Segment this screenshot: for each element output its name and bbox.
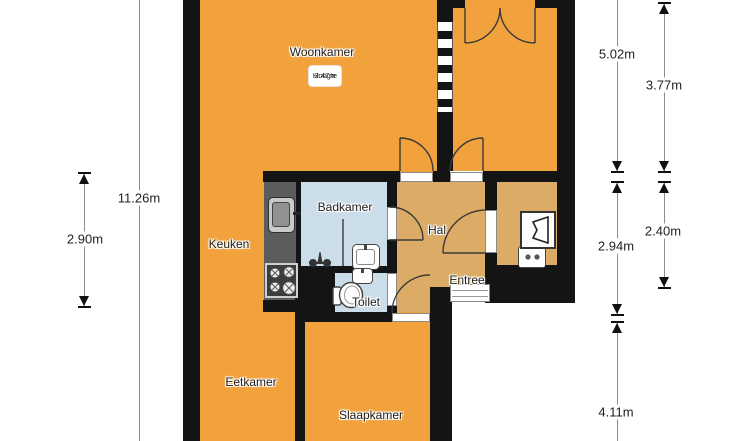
dim-arrow xyxy=(79,174,89,184)
floor-slaapkamer xyxy=(305,322,430,441)
dim-tick xyxy=(658,287,671,289)
wall-hal-utility-top xyxy=(485,182,497,210)
wall-kitchen-bottom xyxy=(263,300,296,312)
power-outlet-icon xyxy=(518,246,546,268)
label-eetkamer: Eetkamer xyxy=(225,375,276,389)
dim-line-right-bottom xyxy=(617,323,618,441)
label-keuken: Keuken xyxy=(209,237,250,251)
dim-tick xyxy=(78,306,91,308)
wall-badkamer-left xyxy=(296,182,301,268)
height-note-badge: Hoogte 2.47m xyxy=(308,65,342,87)
wall-slaapkamer-top xyxy=(303,312,392,322)
wall-horizontal-c xyxy=(483,171,575,182)
threshold-woonkamer-hal xyxy=(400,172,433,182)
wall-top-jamb-left xyxy=(453,0,465,8)
dim-arrow xyxy=(612,323,622,333)
bathroom-sink-tap xyxy=(364,244,367,250)
label-badkamer: Badkamer xyxy=(318,200,373,214)
threshold-utility xyxy=(485,210,497,253)
wall-bottom-right-chunk xyxy=(485,265,575,303)
wall-right-outer xyxy=(557,0,575,287)
threshold-badkamer xyxy=(387,207,397,240)
threshold-slaapkamer xyxy=(392,313,430,322)
wall-horizontal-b xyxy=(433,171,450,182)
dim-tick xyxy=(611,171,624,173)
wall-divider-top xyxy=(437,0,453,22)
dim-arrow xyxy=(612,161,622,171)
height-note-value: 2.47m xyxy=(315,72,336,81)
dim-label-right-mid-inner: 2.40m xyxy=(642,224,684,239)
dim-line-right-top-outer xyxy=(617,0,618,171)
kitchen-sink-basin xyxy=(272,202,290,227)
dim-arrow xyxy=(659,4,669,14)
dim-label-right-mid-outer: 2.94m xyxy=(595,239,637,254)
dim-arrow xyxy=(659,183,669,193)
wall-divider-bottom xyxy=(437,112,453,171)
dim-arrow xyxy=(79,296,89,306)
label-slaapkamer: Slaapkamer xyxy=(339,408,403,422)
floorplan: Woonkamer Hoogte 2.47m Keuken Badkamer T… xyxy=(0,0,750,441)
dim-line-total xyxy=(139,0,140,441)
floor-hal-alcove xyxy=(397,287,430,312)
wall-badkamer-right-mid xyxy=(387,240,397,268)
dim-label-right-top-outer: 5.02m xyxy=(596,47,638,62)
threshold-rightroom-hal xyxy=(450,172,483,182)
dim-arrow xyxy=(612,304,622,314)
wall-left-outer xyxy=(183,0,200,441)
dim-arrow xyxy=(659,161,669,171)
dim-label-right-top-inner: 3.77m xyxy=(643,78,685,93)
dim-arrow xyxy=(659,277,669,287)
front-door-line2 xyxy=(452,296,488,297)
wall-slaapkamer-right xyxy=(430,287,452,441)
hand-basin-tap xyxy=(361,268,364,273)
label-entree: Entree xyxy=(449,273,484,287)
threshold-toilet xyxy=(387,273,397,306)
wall-eetkamer-slaapkamer-divider xyxy=(295,312,305,441)
dim-label-total: 11.26m xyxy=(115,191,163,206)
wall-horizontal-a xyxy=(263,171,400,182)
dim-label-right-bottom: 4.11m xyxy=(595,405,636,420)
dim-tick xyxy=(611,314,624,316)
wall-badkamer-right-top xyxy=(387,182,397,207)
label-woonkamer: Woonkamer xyxy=(290,45,354,59)
dim-tick xyxy=(658,171,671,173)
kitchen-sink-tap xyxy=(293,212,301,215)
bathroom-sink-basin xyxy=(356,249,375,265)
dim-label-kitchen: 2.90m xyxy=(64,232,106,247)
floor-top-right-room xyxy=(453,0,557,171)
label-toilet: Toilet xyxy=(352,295,380,309)
front-door-line1 xyxy=(452,290,488,291)
window-icon xyxy=(437,22,453,112)
dim-arrow xyxy=(612,183,622,193)
label-hal: Hal xyxy=(428,223,446,237)
